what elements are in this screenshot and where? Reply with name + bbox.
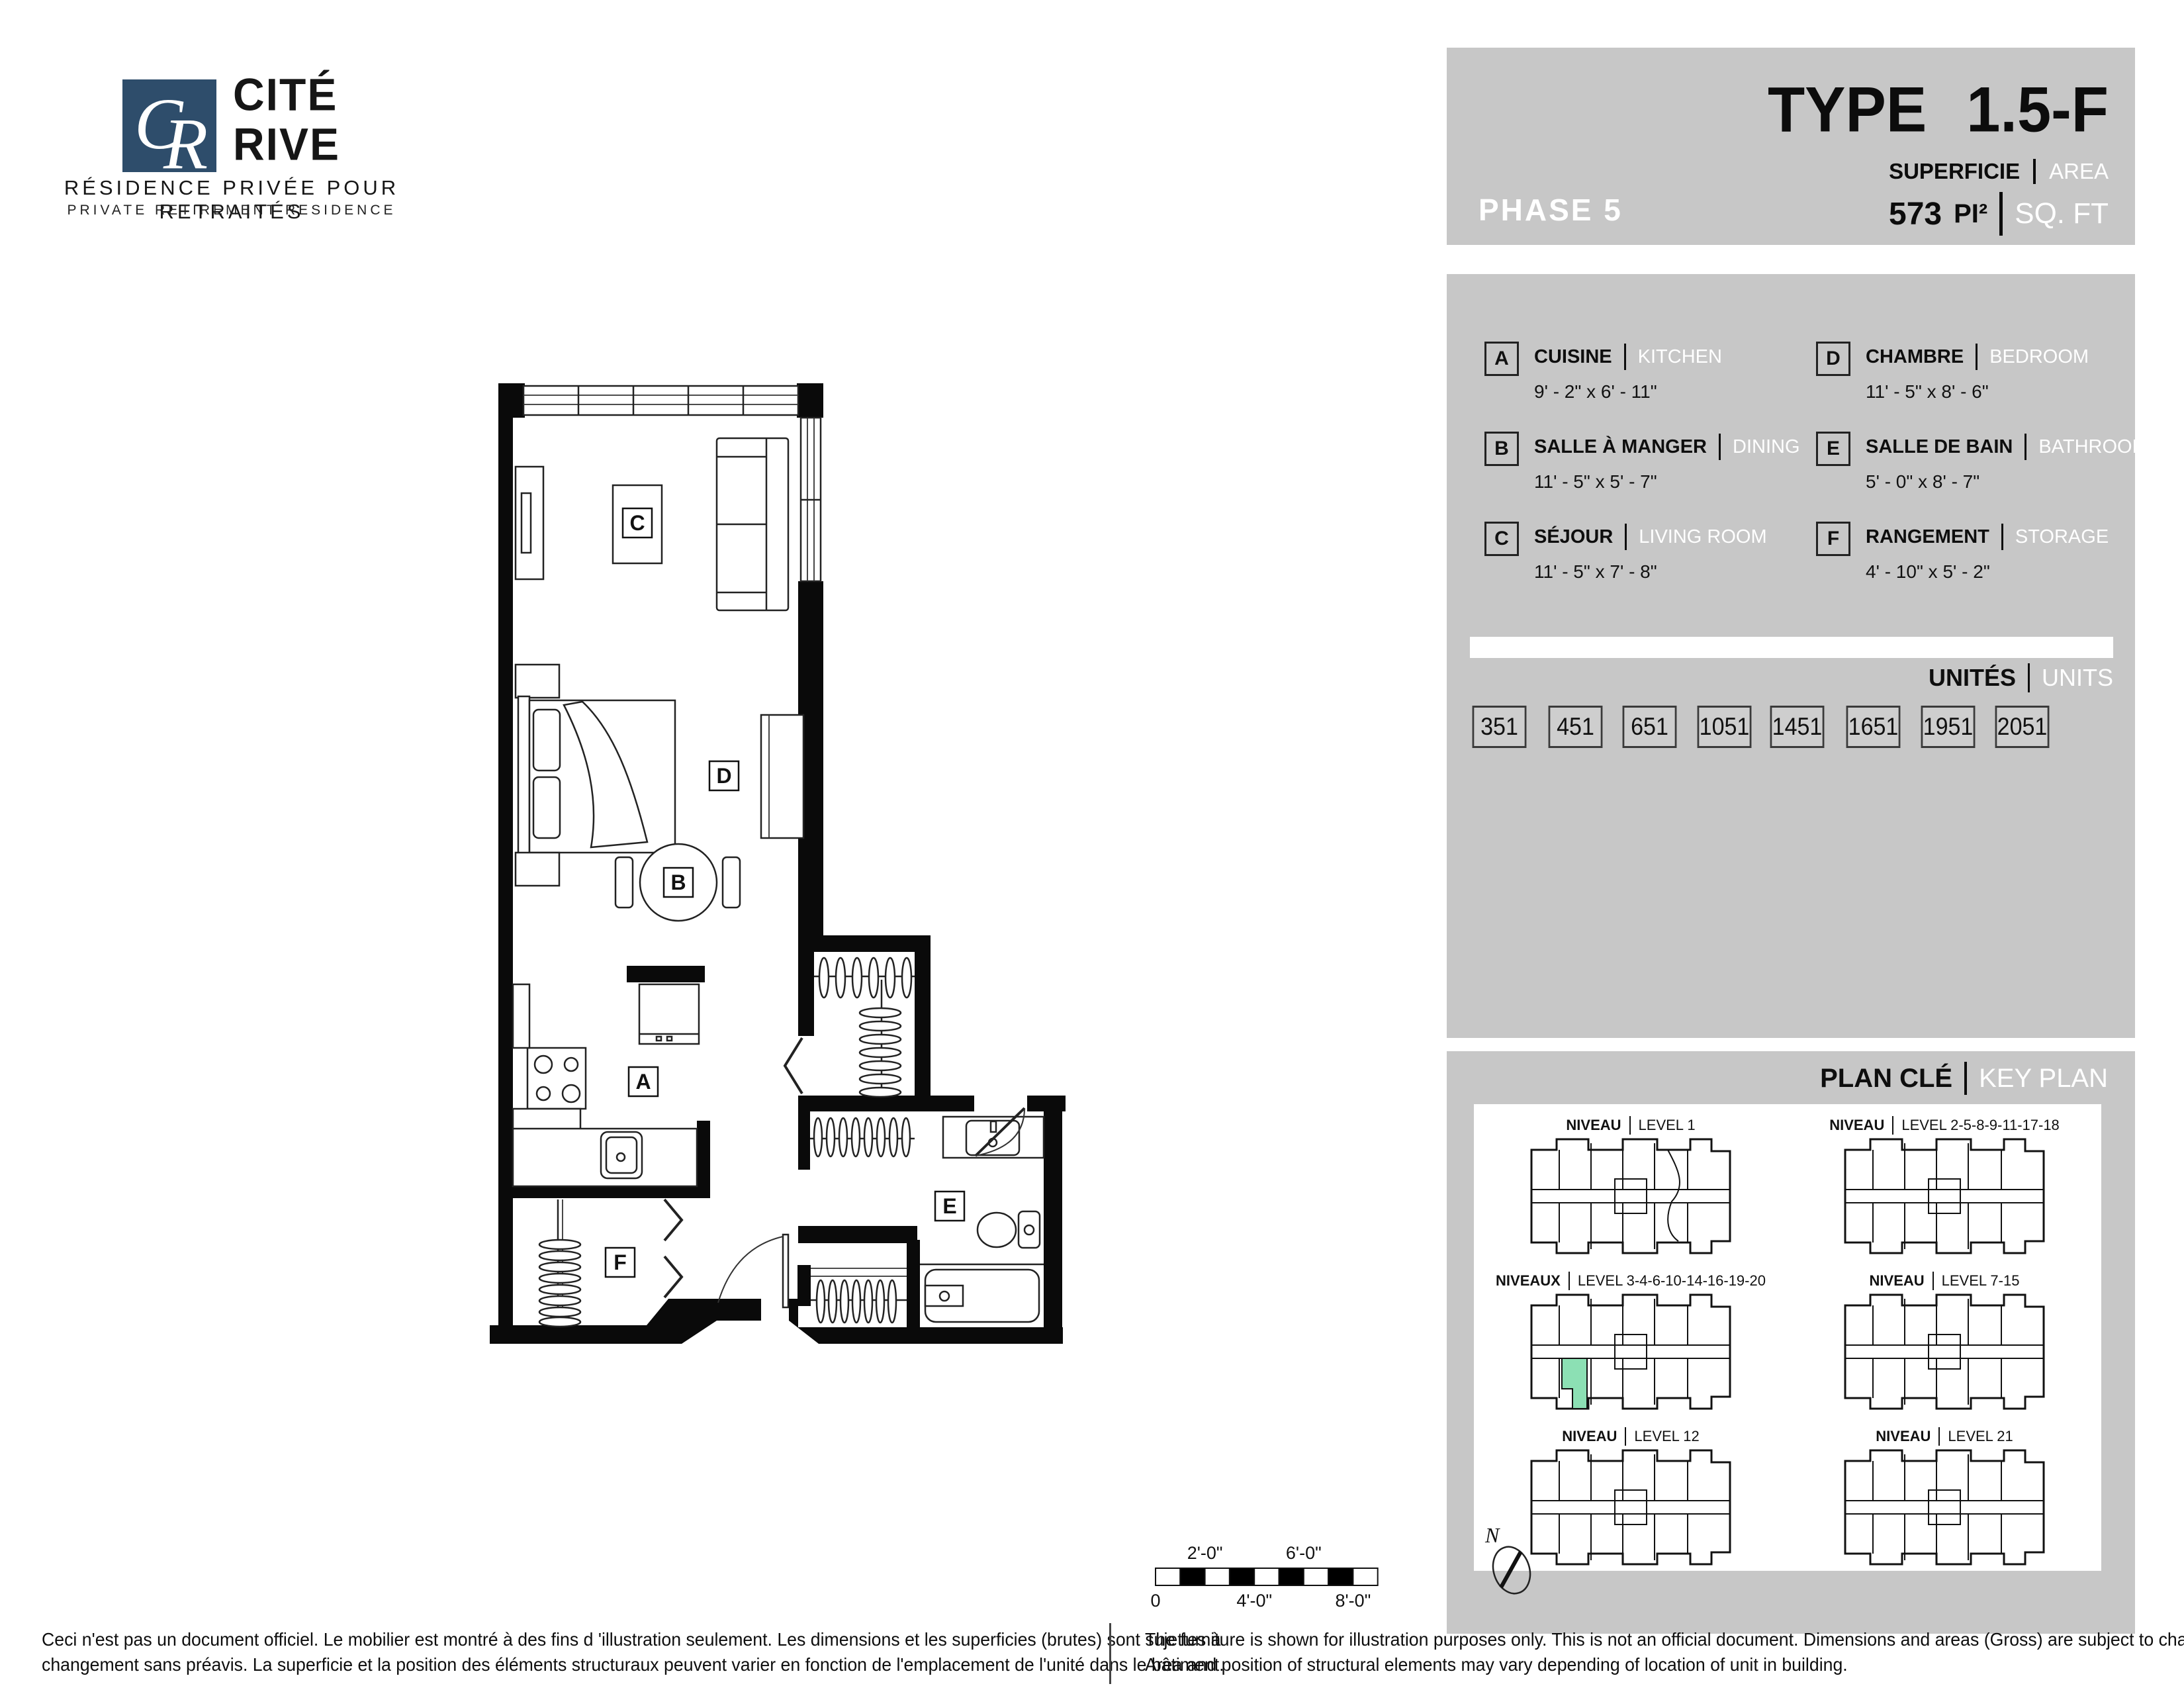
keyplan-canvas: NIVEAULEVEL 1 NIVEAULEVEL 2-5-8-9-11-17-…: [1474, 1104, 2101, 1571]
legend-dims-C: 11' - 5" x 7' - 8": [1534, 561, 1657, 583]
north-compass: N: [1480, 1516, 1546, 1602]
svg-text:E: E: [942, 1194, 956, 1218]
area-value-row: 573 PI² SQ. FT: [1889, 192, 2109, 236]
header-panel: PHASE 5 TYPE 1.5-F SUPERFICIE AREA 573 P…: [1447, 48, 2135, 245]
legend-dims-B: 11' - 5" x 5' - 7": [1534, 471, 1657, 492]
room-label-B: B: [664, 868, 693, 897]
scale-bar: 2'-0" 6'-0" 0 4'-0" 8'-0": [1142, 1539, 1433, 1622]
toilet: [978, 1211, 1040, 1248]
legend-key-E: E: [1816, 432, 1850, 466]
hall-closet-lower: [811, 1268, 907, 1323]
hall-closet-upper: [810, 1118, 915, 1156]
legend-key-F: F: [1816, 522, 1850, 556]
keyplan-title: PLAN CLÉ KEY PLAN: [1820, 1062, 2108, 1095]
building-outline: [1835, 1446, 2054, 1569]
window-band-right: [801, 418, 821, 581]
svg-text:C: C: [629, 511, 645, 535]
area-label-row: SUPERFICIE AREA: [1889, 159, 2109, 184]
window-band-top: [523, 386, 798, 415]
floor-plan: A B C D E F: [463, 357, 1112, 1380]
legend-key-A: A: [1484, 342, 1519, 376]
legend-name-F: RANGEMENTSTORAGE: [1866, 522, 2109, 552]
logo-letter-r: R: [163, 102, 208, 186]
building-outline: [1522, 1446, 1740, 1569]
legend-name-A: CUISINEKITCHEN: [1534, 342, 1722, 372]
north-label: N: [1484, 1523, 1500, 1547]
units-title: UNITÉS UNITS: [1929, 663, 2113, 692]
area-label-fr: SUPERFICIE: [1889, 159, 2020, 184]
svg-text:D: D: [716, 764, 731, 788]
legend-key-B: B: [1484, 432, 1519, 466]
unit-chip-351[interactable]: 351: [1473, 706, 1527, 748]
unit-chip-2051[interactable]: 2051: [1995, 706, 2050, 748]
area-value: 573: [1889, 196, 1942, 232]
legend-name-B: SALLE À MANGERDINING: [1534, 432, 1800, 462]
unit-type-title: TYPE 1.5-F: [1768, 73, 2109, 146]
room-label-A: A: [629, 1067, 658, 1096]
area-unit-en: SQ. FT: [2015, 197, 2109, 230]
room-label-C: C: [623, 508, 652, 538]
footer-divider: [1109, 1623, 1111, 1684]
room-label-F: F: [606, 1248, 635, 1277]
unit-chip-1051[interactable]: 1051: [1698, 706, 1752, 748]
logo-monogram: C R: [122, 79, 216, 172]
closet-bifold-door: [785, 1038, 802, 1094]
svg-text:A: A: [635, 1070, 651, 1094]
bed: [518, 696, 675, 857]
divider: [1999, 192, 2003, 236]
building-outline: [1835, 1135, 2054, 1258]
keyplan-level-3-4-6-10-14-16-19-20: NIVEAUXLEVEL 3-4-6-10-14-16-19-20: [1474, 1260, 1788, 1415]
bathtub: [920, 1264, 1044, 1322]
phase-label: PHASE 5: [1479, 192, 1623, 228]
legend-dims-E: 5' - 0" x 8' - 7": [1866, 471, 1979, 492]
legend-key-C: C: [1484, 522, 1519, 556]
floorplan-sheet: C R CITÉ RIVE RÉSIDENCE PRIVÉE POUR RETR…: [0, 0, 2184, 1688]
legend-dims-F: 4' - 10" x 5' - 2": [1866, 561, 1990, 583]
unit-chip-1451[interactable]: 1451: [1770, 706, 1825, 748]
keyplan-level-7-15: NIVEAULEVEL 7-15: [1788, 1260, 2101, 1415]
legend-dims-A: 9' - 2" x 6' - 11": [1534, 381, 1657, 402]
fridge: [639, 984, 699, 1044]
keyplan-level-2-5-8-9-11-17-18: NIVEAULEVEL 2-5-8-9-11-17-18: [1788, 1104, 2101, 1260]
svg-text:F: F: [614, 1250, 627, 1274]
building-outline-level-1: [1522, 1135, 1740, 1258]
scale-label-2ft: 2'-0": [1187, 1543, 1223, 1563]
scale-label-6ft: 6'-0": [1286, 1543, 1322, 1563]
legend-name-C: SÉJOURLIVING ROOM: [1534, 522, 1767, 552]
dresser: [761, 715, 803, 838]
legend-dims-D: 11' - 5" x 8' - 6": [1866, 381, 1989, 402]
disclaimer-fr: Ceci n'est pas un document officiel. Le …: [42, 1627, 1224, 1677]
storage-bifold-doors: [664, 1199, 682, 1297]
storage-closet-F: [539, 1199, 580, 1327]
unit-chip-451[interactable]: 451: [1549, 706, 1603, 748]
svg-text:B: B: [670, 870, 686, 894]
room-label-D: D: [709, 761, 739, 790]
area-unit-fr: PI²: [1954, 199, 1987, 229]
legend-name-E: SALLE DE BAINBATHROOM: [1866, 432, 2148, 462]
brand-name: CITÉ RIVE: [233, 70, 340, 169]
nightstand: [516, 665, 559, 698]
entry-door: [718, 1235, 788, 1307]
keyplan-level-21: NIVEAULEVEL 21: [1788, 1415, 2101, 1571]
unit-chip-1951[interactable]: 1951: [1921, 706, 1976, 748]
legend-key-D: D: [1816, 342, 1850, 376]
unit-chip-651[interactable]: 651: [1623, 706, 1677, 748]
stove: [527, 1048, 586, 1109]
legend-name-D: CHAMBREBEDROOM: [1866, 342, 2089, 372]
keyplan-level-1: NIVEAULEVEL 1: [1474, 1104, 1788, 1260]
unit-chip-1651[interactable]: 1651: [1846, 706, 1901, 748]
scale-label-0: 0: [1150, 1591, 1160, 1611]
brand-subtitle-en: PRIVATE RETIREMENT RESIDENCE: [26, 203, 437, 218]
sofa: [717, 438, 788, 610]
scale-label-4ft: 4'-0": [1236, 1591, 1272, 1611]
tv-unit: [516, 467, 543, 579]
kitchen-sink: [601, 1132, 642, 1178]
divider: [2033, 159, 2036, 184]
disclaimer-en: The furniture is shown for illustration …: [1145, 1627, 2184, 1677]
scale-label-8ft: 8'-0": [1336, 1591, 1371, 1611]
type-value: 1.5-F: [1966, 73, 2109, 146]
area-label-en: AREA: [2049, 159, 2109, 184]
nightstand: [516, 853, 559, 886]
room-label-E: E: [935, 1192, 964, 1221]
keyplan-panel: PLAN CLÉ KEY PLAN NIVEAULEVEL 1: [1447, 1051, 2135, 1634]
walk-in-closet: [814, 958, 915, 1097]
legend-panel: A CUISINEKITCHEN 9' - 2" x 6' - 11" B SA…: [1447, 274, 2135, 1038]
building-outline: [1835, 1290, 2054, 1413]
section-divider-bar: [1470, 637, 2113, 658]
type-label: TYPE: [1768, 73, 1927, 146]
building-outline-highlighted: [1522, 1290, 1740, 1413]
